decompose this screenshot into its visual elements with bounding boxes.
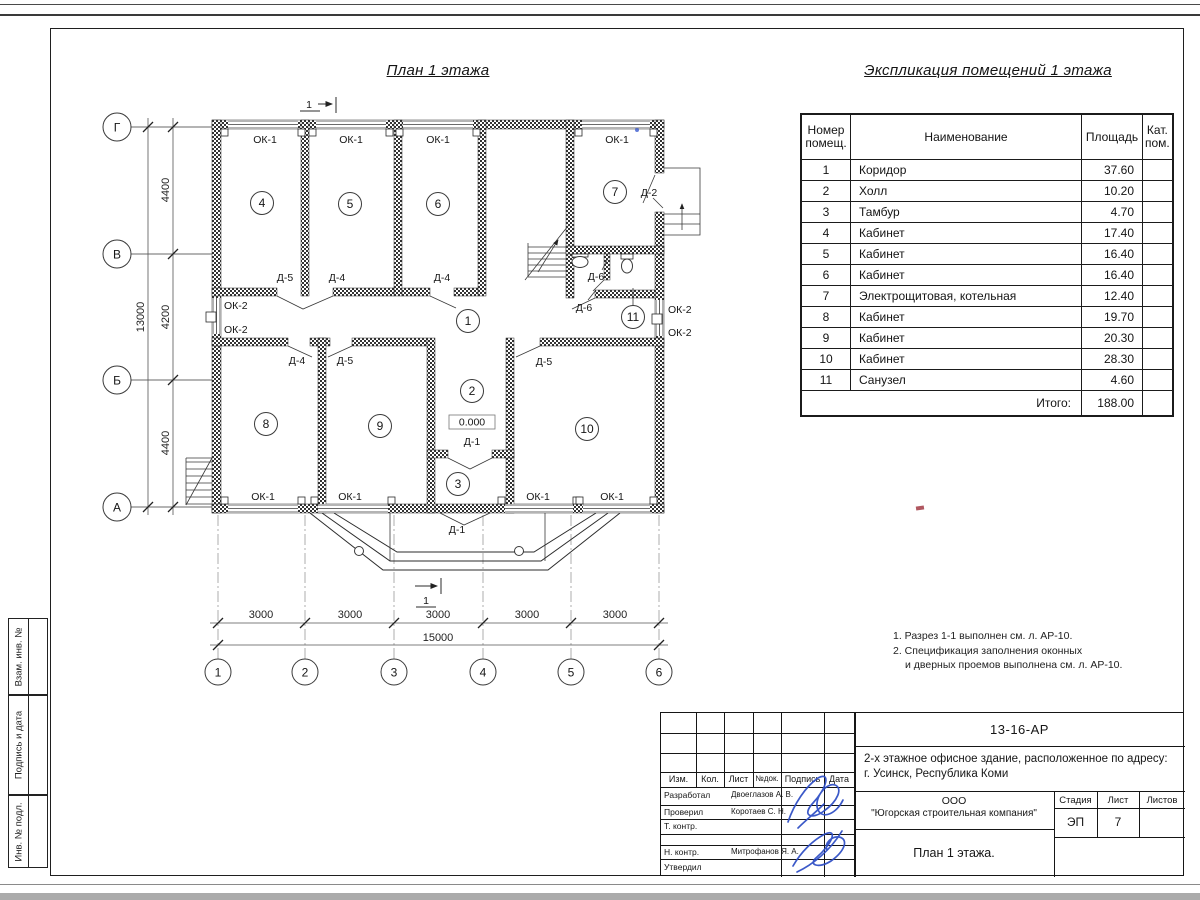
- door-label: Д-5: [277, 272, 294, 284]
- title-block: Изм. Кол. Лист №док. Подпись Дата Разраб…: [660, 712, 1184, 876]
- door-label: Д-2: [641, 187, 658, 199]
- door-label: Д-6: [576, 302, 593, 314]
- company-line2: "Югорская строительная компания": [854, 808, 1054, 819]
- note-line: 1. Разрез 1-1 выполнен см. л. АР-10.: [893, 629, 1122, 644]
- window-jambs: [221, 129, 657, 504]
- col-header-number: Номерпомещ.: [801, 114, 851, 160]
- note-line: 2. Спецификация заполнения оконных: [893, 644, 1122, 659]
- role-label: Проверил: [664, 807, 703, 817]
- section-mark-top: 1: [300, 97, 336, 113]
- left-dimensions: 4400 4200 4400 13000: [135, 118, 178, 515]
- svg-text:3: 3: [391, 666, 398, 680]
- plan-title: План 1 этажа: [338, 62, 538, 79]
- stamp-box-label-cell: Подпись и дата: [9, 696, 29, 794]
- axis-markers: Г В Б А 1 2 3 4 5 6: [103, 113, 672, 685]
- svg-text:4400: 4400: [160, 178, 172, 202]
- svg-text:3000: 3000: [426, 609, 450, 621]
- svg-text:7: 7: [612, 185, 619, 199]
- svg-text:2: 2: [469, 384, 476, 398]
- sheet-label: Лист: [1097, 795, 1139, 806]
- object-name-line2: г. Усинск, Республика Коми: [864, 768, 1008, 780]
- section-mark-bottom: 1: [415, 578, 441, 607]
- table-row: 11Санузел4.60: [801, 370, 1173, 391]
- toilet-icon: [621, 254, 633, 259]
- stage-label: Стадия: [1054, 795, 1097, 806]
- role-label: Н. контр.: [664, 847, 699, 857]
- svg-text:11: 11: [627, 310, 640, 324]
- stamp-box-vzam: Взам. инв. №: [8, 618, 48, 695]
- door-label: Д-4: [289, 355, 306, 367]
- signatures: [770, 762, 860, 877]
- svg-text:4400: 4400: [160, 431, 172, 455]
- window-label: ОК-1: [605, 134, 629, 146]
- col-header-name: Наименование: [851, 114, 1082, 160]
- table-row: 5Кабинет16.40: [801, 244, 1173, 265]
- drawing-sheet: Взам. инв. № Подпись и дата Инв. № подл.…: [0, 0, 1200, 900]
- floor-plan-drawing: 1 1 4400 4200 4400 13000 3000 30: [80, 85, 740, 700]
- sheet-bottom-band: [0, 893, 1200, 900]
- table-row: 2Холл10.20: [801, 181, 1173, 202]
- window-label: ОК-2: [668, 304, 692, 316]
- external-landing-right: [664, 168, 700, 235]
- total-label: Итого:: [801, 391, 1082, 417]
- window-label: ОК-2: [668, 327, 692, 339]
- role-label: Разработал: [664, 790, 710, 800]
- total-value: 188.00: [1082, 391, 1143, 417]
- svg-text:15000: 15000: [423, 632, 454, 644]
- door-label: Д-4: [434, 272, 451, 284]
- role-label: Утвердил: [664, 862, 702, 872]
- sheet-top-line-2: [0, 14, 1200, 16]
- elevation-mark: 0.000: [449, 415, 495, 429]
- door-label: Д-1: [449, 524, 466, 536]
- porch-column: [355, 547, 364, 556]
- stamp-empty-cell: [29, 796, 47, 867]
- stamp-box-label-cell: Инв. № подл.: [9, 796, 29, 867]
- sink-icon: [572, 257, 588, 268]
- explication-table: Номерпомещ. Наименование Площадь Кат.пом…: [800, 113, 1174, 417]
- table-row: 1Коридор37.60: [801, 160, 1173, 181]
- svg-text:4: 4: [259, 196, 266, 210]
- door-label: Д-4: [329, 272, 346, 284]
- col-header-area: Площадь: [1082, 114, 1143, 160]
- sheets-label: Листов: [1139, 795, 1185, 806]
- svg-text:3000: 3000: [603, 609, 627, 621]
- bottom-dimensions: 3000 3000 3000 3000 3000 15000: [210, 609, 668, 650]
- door-label: Д-5: [337, 355, 354, 367]
- sheet-number: 7: [1097, 815, 1139, 829]
- table-row: 9Кабинет20.30: [801, 328, 1173, 349]
- svg-text:10: 10: [580, 422, 594, 436]
- object-name-line1: 2-х этажное офисное здание, расположенно…: [864, 753, 1168, 765]
- window-label: ОК-2: [224, 324, 248, 336]
- svg-text:1: 1: [306, 99, 312, 111]
- stamp-box-label-cell: Взам. инв. №: [9, 619, 29, 694]
- door-swings: [277, 175, 663, 525]
- signature-scribble: [788, 776, 843, 822]
- table-row: 8Кабинет19.70: [801, 307, 1173, 328]
- svg-text:5: 5: [347, 197, 354, 211]
- stamp-empty-cell: [29, 619, 47, 694]
- svg-text:9: 9: [377, 419, 384, 433]
- stamp-box-inv: Инв. № подл.: [8, 795, 48, 868]
- table-row: 7Электрощитовая, котельная12.40: [801, 286, 1173, 307]
- signature-scribble: [798, 804, 824, 828]
- role-label: Т. контр.: [664, 821, 697, 831]
- sheet-title: План 1 этажа.: [854, 846, 1054, 860]
- svg-text:0.000: 0.000: [459, 417, 485, 429]
- svg-text:2: 2: [302, 666, 309, 680]
- window-label: ОК-1: [251, 491, 275, 503]
- svg-text:Б: Б: [113, 374, 121, 388]
- stamp-empty-cell: [29, 696, 47, 794]
- svg-text:А: А: [113, 501, 121, 515]
- sheet-top-line: [0, 4, 1200, 5]
- svg-text:1: 1: [465, 314, 472, 328]
- svg-text:3: 3: [455, 477, 462, 491]
- external-stair-left: [186, 458, 212, 505]
- col-header-cat: Кат.пом.: [1143, 114, 1173, 160]
- svg-text:Г: Г: [114, 121, 121, 135]
- window-label: ОК-1: [426, 134, 450, 146]
- svg-text:4200: 4200: [160, 305, 172, 329]
- window-label: ОК-1: [339, 134, 363, 146]
- table-row: 3Тамбур4.70: [801, 202, 1173, 223]
- table-row: 10Кабинет28.30: [801, 349, 1173, 370]
- window-label: ОК-2: [224, 300, 248, 312]
- col-izm: Изм.: [661, 774, 696, 784]
- sheet-bottom-line: [0, 884, 1200, 885]
- entrance-porch: [310, 513, 620, 570]
- svg-text:3000: 3000: [338, 609, 362, 621]
- svg-text:3000: 3000: [249, 609, 273, 621]
- svg-text:6: 6: [435, 197, 442, 211]
- table-row: 6Кабинет16.40: [801, 265, 1173, 286]
- svg-text:5: 5: [568, 666, 575, 680]
- table-total-row: Итого:188.00: [801, 391, 1173, 417]
- svg-text:6: 6: [656, 666, 663, 680]
- stage-value: ЭП: [1054, 815, 1097, 829]
- window-label: ОК-1: [253, 134, 277, 146]
- col-list: Лист: [724, 774, 753, 784]
- drawing-notes: 1. Разрез 1-1 выполнен см. л. АР-10. 2. …: [893, 629, 1122, 673]
- svg-text:13000: 13000: [135, 302, 147, 333]
- blue-speck: [635, 128, 639, 132]
- stamp-box-podpis: Подпись и дата: [8, 695, 48, 795]
- window-label: ОК-1: [526, 491, 550, 503]
- table-row: 4Кабинет17.40: [801, 223, 1173, 244]
- col-kol: Кол.: [696, 774, 724, 784]
- svg-text:4: 4: [480, 666, 487, 680]
- company-line1: ООО: [854, 795, 1054, 807]
- stamp-label: Подпись и дата: [13, 711, 24, 779]
- walls: [212, 120, 664, 513]
- explication-header-row: Номерпомещ. Наименование Площадь Кат.пом…: [801, 114, 1173, 160]
- porch-column: [515, 547, 524, 556]
- svg-text:8: 8: [263, 417, 270, 431]
- door-label: Д-5: [536, 356, 553, 368]
- explication-title: Экспликация помещений 1 этажа: [818, 62, 1158, 79]
- svg-text:1: 1: [423, 595, 429, 607]
- window-label: ОК-1: [338, 491, 362, 503]
- internal-staircase: [525, 226, 568, 280]
- svg-text:3000: 3000: [515, 609, 539, 621]
- svg-text:В: В: [113, 248, 121, 262]
- stamp-label: Взам. инв. №: [13, 627, 24, 686]
- note-line: и дверных проемов выполнена см. л. АР-10…: [893, 658, 1122, 673]
- door-label: Д-6: [588, 271, 605, 283]
- door-label: Д-1: [464, 436, 481, 448]
- document-number: 13-16-АР: [854, 722, 1185, 737]
- svg-text:1: 1: [215, 666, 222, 680]
- stamp-label: Инв. № подл.: [13, 802, 24, 861]
- toilet-icon: [622, 259, 633, 273]
- window-label: ОК-1: [600, 491, 624, 503]
